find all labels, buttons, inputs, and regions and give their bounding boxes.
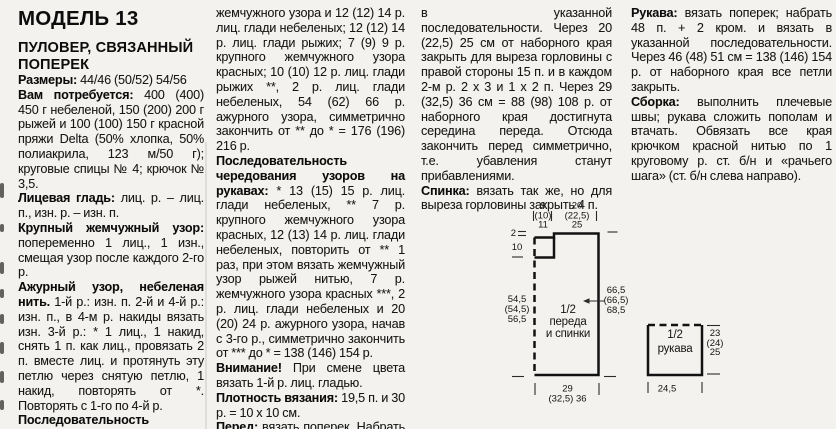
center-length-value: 56,5 bbox=[508, 314, 527, 325]
bottom-width-value: (32,5) 36 bbox=[548, 394, 586, 405]
scan-artifact bbox=[0, 371, 4, 383]
paragraph-label: Сборка: bbox=[631, 95, 680, 109]
body-right-measurements: 66,5 (66,5) 68,5 bbox=[583, 232, 628, 377]
paragraph-label: Лицевая гладь: bbox=[18, 191, 115, 205]
paragraph-text: в указанной последовательности. Через 20… bbox=[421, 6, 612, 183]
scan-artifact bbox=[0, 183, 4, 198]
shoulder-width-value: 25 bbox=[572, 220, 583, 231]
sleeve-side-value: 25 bbox=[710, 347, 721, 358]
paragraph-stockinette: Лицевая гладь: лиц. р. – лиц. п., изн. р… bbox=[18, 191, 204, 221]
paragraph-assembly: Сборка: выполнить плечевые швы; рукава с… bbox=[631, 95, 832, 184]
front-neck-line bbox=[535, 238, 555, 258]
scan-artifact bbox=[0, 400, 4, 410]
paragraph-label: Вам потребуется: bbox=[18, 88, 133, 102]
sleeve-bottom-width-value: 24,5 bbox=[658, 384, 677, 395]
paragraph-label: Крупный жемчужный узор: bbox=[18, 221, 204, 235]
knitting-pattern-page: МОДЕЛЬ 13 ПУЛОВЕР, СВЯЗАННЫЙ ПОПЕРЕК Раз… bbox=[0, 0, 836, 429]
paragraph-attention: Внимание! При смене цвета вязать 1-й р. … bbox=[216, 361, 405, 391]
paragraph-label: Внимание! bbox=[216, 361, 282, 375]
column-2: жемчужного узора и 12 (12) 14 р. лиц. гл… bbox=[216, 0, 405, 429]
side-length-arrow bbox=[583, 298, 605, 304]
paragraph-front-sequence-cont: жемчужного узора и 12 (12) 14 р. лиц. гл… bbox=[216, 6, 405, 154]
paragraph-label: Размеры: bbox=[18, 73, 77, 87]
svg-text:переда: переда bbox=[549, 316, 587, 328]
side-length-value: 68,5 bbox=[607, 305, 626, 316]
paragraph-label: Спинка: bbox=[421, 184, 470, 198]
scan-artifact bbox=[0, 342, 4, 354]
neck-depth-value: 10 bbox=[512, 242, 523, 253]
paragraph-seed-stitch: Крупный жемчужный узор: попеременно 1 ли… bbox=[18, 221, 204, 280]
paragraph-materials: Вам потребуется: 400 (400) 450 г небелен… bbox=[18, 88, 204, 192]
scan-artifact bbox=[0, 314, 4, 324]
svg-text:1/2: 1/2 bbox=[560, 304, 575, 316]
sleeve-right-measurements: 23 (24) 25 bbox=[707, 326, 724, 375]
neck-step-value: 2 bbox=[511, 228, 516, 239]
paragraph-sizes: Размеры: 44/46 (50/52) 54/56 bbox=[18, 73, 204, 88]
paragraph-text: 44/46 (50/52) 54/56 bbox=[80, 73, 186, 87]
body-top-measurements: 9 (10) 11 20 (22,5) 25 bbox=[534, 201, 597, 231]
scan-artifact bbox=[0, 224, 4, 232]
column-3: в указанной последовательности. Через 20… bbox=[421, 0, 612, 213]
paragraph-gauge: Плотность вязания: 19,5 п. и 30 р. = 10 … bbox=[216, 391, 405, 421]
scan-artifact bbox=[0, 289, 4, 298]
paragraph-label: Рукава: bbox=[631, 6, 677, 20]
page-title: МОДЕЛЬ 13 bbox=[18, 8, 204, 29]
paragraph-text: 400 (400) 450 г небеленой, 150 (200) 200… bbox=[18, 88, 204, 191]
sleeve-bottom-measurements: 24,5 bbox=[648, 382, 702, 395]
paragraph-text: * 13 (15) 15 р. лиц. глади небеленых, **… bbox=[216, 184, 405, 361]
scan-artifact bbox=[0, 262, 4, 274]
column-4: Рукава: вязать поперек; набрать 48 п. + … bbox=[631, 0, 832, 184]
svg-text:рукава: рукава bbox=[658, 343, 694, 355]
schematic-diagram: 9 (10) 11 20 (22,5) 25 2 10 54,5 (54,5) … bbox=[495, 195, 836, 429]
body-piece-label: 1/2 переда и спинки bbox=[546, 304, 590, 340]
svg-text:и спинки: и спинки bbox=[546, 328, 590, 340]
paragraph-text: попеременно 1 лиц., 1 изн., смещая узор … bbox=[18, 236, 204, 280]
neck-width-value: 11 bbox=[538, 220, 548, 231]
paragraph-lace-pattern: Ажурный узор, небеленая нить. 1-й р.: из… bbox=[18, 280, 204, 413]
column-1: МОДЕЛЬ 13 ПУЛОВЕР, СВЯЗАННЫЙ ПОПЕРЕК Раз… bbox=[18, 0, 204, 429]
body-bottom-measurements: 29 (32,5) 36 bbox=[535, 383, 599, 405]
body-left-measurements: 2 10 54,5 (54,5) 56,5 bbox=[505, 228, 530, 377]
garment-title: ПУЛОВЕР, СВЯЗАННЫЙ ПОПЕРЕК bbox=[18, 40, 204, 73]
svg-text:1/2: 1/2 bbox=[667, 329, 682, 341]
scan-artifact bbox=[205, 142, 207, 429]
paragraph-front-cont: в указанной последовательности. Через 20… bbox=[421, 6, 612, 184]
paragraph-text: 1-й р.: изн. п. 2-й и 4-й р.: изн. п., в… bbox=[18, 295, 204, 413]
sleeve-piece-label: 1/2 рукава bbox=[658, 329, 694, 355]
paragraph-sleeves: Рукава: вязать поперек; набрать 48 п. + … bbox=[631, 6, 832, 95]
paragraph-label: Плотность вязания: bbox=[216, 391, 338, 405]
paragraph-front: Перед: вязать поперек. Набрать 130 (130)… bbox=[216, 420, 405, 429]
paragraph-sleeve-sequence: Последовательность чередования узоров на… bbox=[216, 154, 405, 361]
paragraph-front-sequence: Последовательность чередования узоров сп… bbox=[18, 413, 204, 429]
paragraph-label: Последовательность чередования узоров сп… bbox=[18, 413, 204, 429]
paragraph-text: жемчужного узора и 12 (12) 14 р. лиц. гл… bbox=[216, 6, 405, 153]
paragraph-label: Перед: bbox=[216, 420, 258, 429]
